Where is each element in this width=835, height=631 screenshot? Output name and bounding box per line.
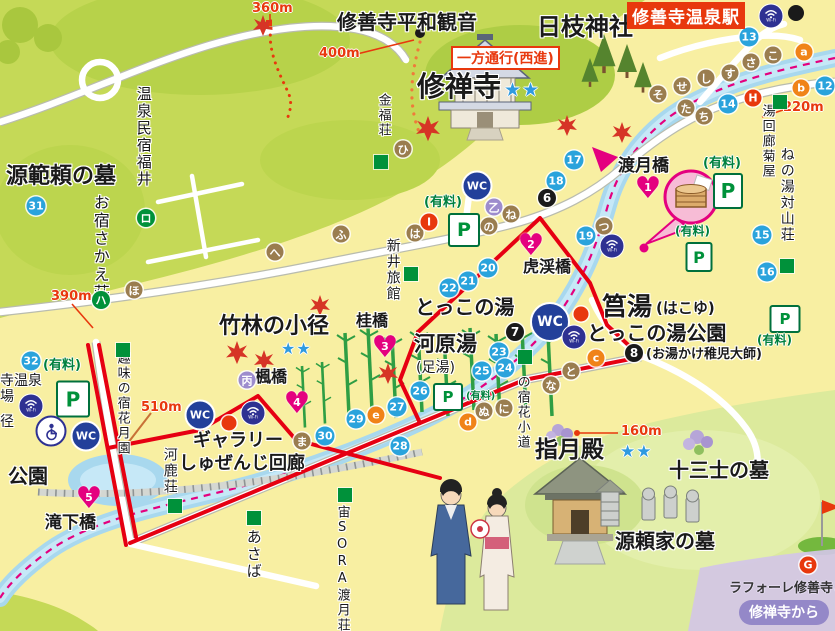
marker-な: な [543,377,560,394]
ryokan-marker [773,95,787,109]
marker-せ: せ [674,78,691,95]
label-kawara-yu: 河原湯 [414,333,477,355]
marker-し: し [698,70,715,87]
label-sora: 宙SORA渡月荘金龍 [335,505,349,631]
label-katsura-bridge: 桂橋 [356,313,388,330]
fee-label: (有料) [675,222,710,239]
label-noriyori-grave: 源範頼の墓 [6,165,116,188]
distance-160m: 160m [621,424,662,439]
label-kei: 径 [0,415,14,430]
marker-ち: ち [696,108,713,125]
marker-e: e [368,407,385,424]
label-kagetsuen: 趣味の宿花月園 [115,351,129,456]
label-minshuku-fukui: 温泉民宿福井 [135,86,151,188]
marker-d: d [460,414,477,431]
label-asaba: あさば [245,529,261,580]
marker-ふ: ふ [333,226,350,243]
marker-13: 13 [740,28,759,47]
ryokan-marker [404,267,418,281]
marker-ま: ま [294,433,311,450]
marker-24: 24 [496,359,515,378]
station-name-box: 修善寺温泉駅 [627,2,745,29]
marker-7: 7 [506,323,524,341]
label-sakaeso: お宿さかえ荘 [91,194,108,302]
label-tokko-park: とっこの湯公園 [587,323,726,344]
marker-と: と [563,363,580,380]
fee-label: (有料) [757,331,792,348]
marker-I: I [421,214,438,231]
wifi-icon: Wi-Fi [600,234,625,259]
ryokan-marker [374,155,388,169]
marker-ぬ: ぬ [476,403,493,420]
marker-丙: 丙 [239,372,256,389]
label-tera-onsen: 寺温泉 [0,374,42,389]
marker-dot [222,416,237,431]
marker-へ: へ [267,244,284,261]
marker-18: 18 [547,172,566,191]
marker-b: b [793,80,810,97]
wc-icon: WC [462,171,493,202]
marker-つ: つ [596,218,613,235]
marker-8: 8 [625,344,643,362]
fee-label: (有料) [466,387,495,402]
marker-15: 15 [753,226,772,245]
label-tokko-no-yu: とっこの湯 [415,297,514,318]
rating-stars-1: ★★ [504,79,540,101]
ryokan-marker [247,511,261,525]
marker-H: H [745,90,762,107]
marker-G: G [800,557,817,574]
label-shuzenji-temple: 修禅寺 [417,72,501,101]
marker-に: に [496,400,513,417]
one-way-sign: 一方通行(西進) [451,46,560,70]
marker-c: c [588,350,605,367]
parking-icon: P [713,173,743,209]
marker-17: 17 [565,151,584,170]
label-hakoyu-kana: (はこゆ) [656,301,715,317]
parking-icon: P [433,383,463,411]
note-pill: 修禅寺から [739,600,829,625]
fee-label: (有料) [424,191,462,210]
label-gallery-line2: しゅぜんじ回廊 [179,455,305,474]
wifi-icon: Wi-Fi [19,394,44,419]
label-nenoyu-taizanso: ねの湯対山荘 [779,147,794,243]
label-jusanshi-grave: 十三士の墓 [669,460,769,481]
bridge-marker-5: ♥5 [74,484,104,514]
marker-ハ: ハ [92,291,110,309]
parking-icon: P [686,242,713,272]
marker-29: 29 [347,410,366,429]
wheelchair-icon [36,416,67,447]
ryokan-marker [338,488,352,502]
marker-25: 25 [473,362,492,381]
label-laforet: ラフォーレ修善寺と [729,577,835,596]
marker-dot [574,307,589,322]
label-yoriie-grave: 源頼家の墓 [615,531,715,552]
location-dot [788,5,804,21]
marker-26: 26 [411,382,430,401]
onsen-spot-dot [640,244,649,253]
bridge-marker-3: ♥3 [370,333,400,363]
marker-さ: さ [743,54,760,71]
marker-32: 32 [22,352,41,371]
marker-ひ: ひ [395,141,412,158]
wifi-icon: Wi-Fi [562,325,587,350]
wifi-icon: Wi-Fi [241,401,266,426]
bridge-marker-1: ♥1 [633,174,663,204]
ryokan-marker [168,499,182,513]
marker-そ: そ [650,86,667,103]
label-shigetsuden: 指月殿 [535,438,604,462]
wc-icon: WC [71,421,102,452]
label-chikurin-path: 竹林の小径 [219,315,329,338]
label-peace-kannon: 修善寺平和観音 [337,12,477,33]
marker-27: 27 [388,398,407,417]
label-hakoyu: 筥湯 [602,294,652,320]
marker-乙: 乙 [486,199,503,216]
marker-a: a [796,44,813,61]
marker-の: の [481,218,498,235]
marker-20: 20 [479,259,498,278]
label-kaede-bridge: 楓橋 [255,369,287,386]
parking-icon: P [448,213,480,247]
wifi-icon: Wi-Fi [759,4,784,29]
marker-た: た [678,100,695,117]
label-koen: 公園 [8,466,48,487]
bridge-marker-2: ♥2 [516,231,546,261]
marker-は: は [407,225,424,242]
label-takishita-bridge: 滝下橋 [45,515,96,533]
marker-す: す [722,65,739,82]
label-kinpukuso: 金福荘 [376,93,390,138]
marker-ロ: ロ [137,209,155,227]
label-yukairo-kikuya: 湯回廊菊屋 [760,104,774,179]
ryokan-marker [518,350,532,364]
label-hana-komichi: の宿花小道 [515,375,529,450]
label-arai-ryokan: 新井旅館 [385,238,400,302]
parking-icon: P [770,305,801,333]
distance-220m: 220m [783,100,824,115]
label-ba: 場 [0,390,14,405]
ryokan-marker [116,343,130,357]
rating-stars-3: ★★ [620,442,652,462]
marker-22: 22 [440,279,459,298]
label-hie-jinja: 日枝神社 [537,15,633,40]
distance-360m: 360m [252,1,293,16]
marker-28: 28 [391,437,410,456]
ryokan-marker [780,259,794,273]
rating-stars-2: ★★ [281,339,312,358]
label-ashiyu: (足湯) [416,361,455,376]
marker-21: 21 [459,272,478,291]
marker-ほ: ほ [126,282,143,299]
map-canvas: 修善寺温泉駅 一方通行(西進) ラフォーレ修善寺と 修禅寺から 修善寺平和観音日… [0,0,835,631]
marker-12: 12 [816,77,835,96]
label-gallery-line1: ギャラリー [193,432,283,451]
fee-label: (有料) [703,152,741,171]
wc-icon: WC [185,400,216,431]
parking-icon: P [56,381,90,418]
marker-16: 16 [758,263,777,282]
distance-400m: 400m [319,46,360,61]
marker-14: 14 [719,95,738,114]
marker-こ: こ [765,47,782,64]
label-oyukake: (お湯かけ稚児大師) [646,348,762,362]
bridge-marker-4: ♥4 [282,389,312,419]
marker-31: 31 [27,197,46,216]
marker-ね: ね [503,206,520,223]
distance-390m: 390m [51,289,92,304]
marker-30: 30 [316,427,335,446]
distance-510m: 510m [141,400,182,415]
fee-label: (有料) [43,354,81,373]
label-kajukaso: 河鹿荘 [162,447,177,495]
marker-6: 6 [538,189,556,207]
marker-19: 19 [577,227,596,246]
